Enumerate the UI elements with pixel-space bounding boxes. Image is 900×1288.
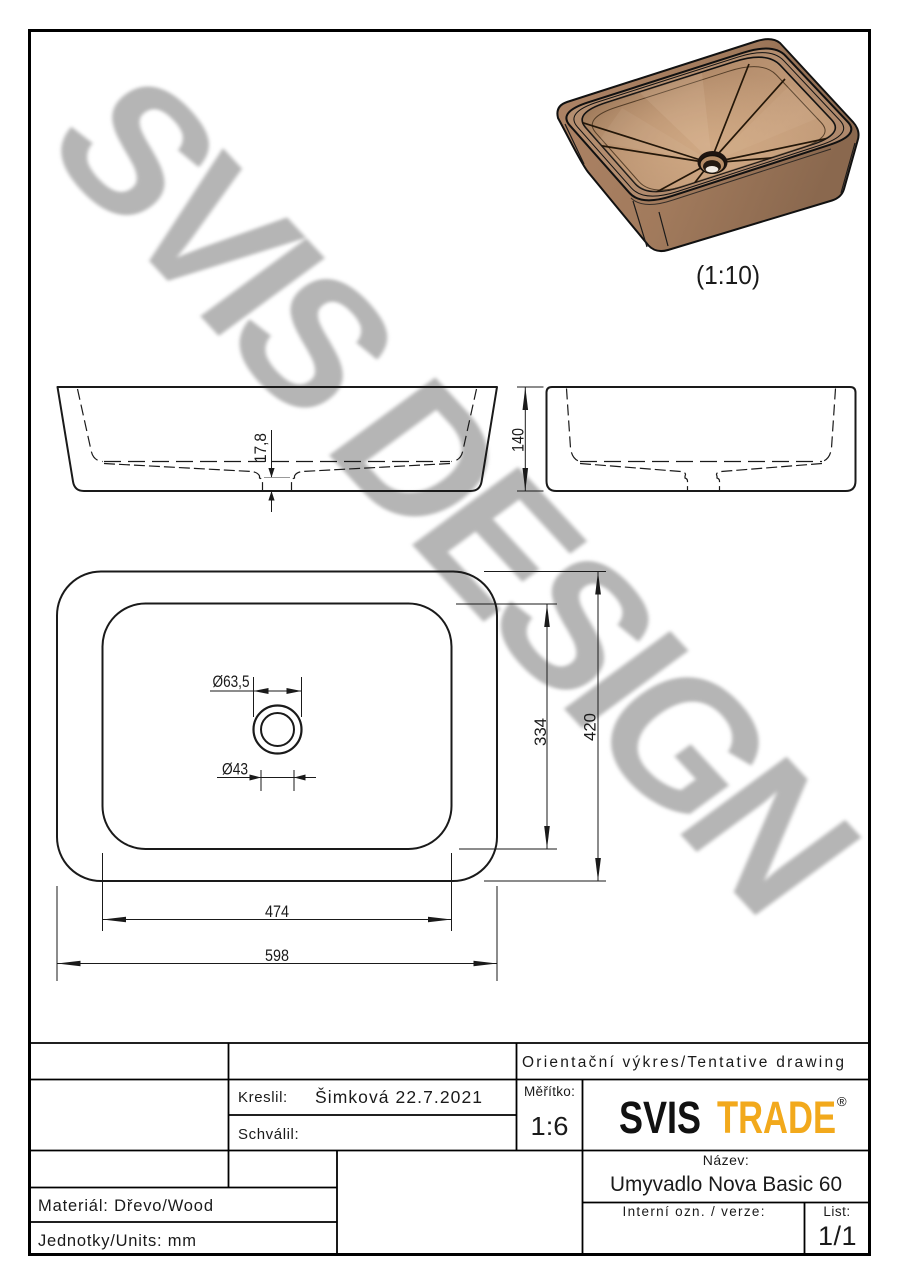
svg-text:Šimková 22.7.2021: Šimková 22.7.2021 <box>315 1086 482 1107</box>
svg-text:Interní ozn. / verze:: Interní ozn. / verze: <box>623 1204 765 1219</box>
svg-text:Schválil:: Schválil: <box>238 1126 299 1143</box>
svg-text:Název:: Název: <box>703 1152 750 1168</box>
svg-text:Materiál: Dřevo/Wood: Materiál: Dřevo/Wood <box>38 1197 213 1215</box>
svg-text:Měřítko:: Měřítko: <box>524 1084 575 1099</box>
svg-text:598: 598 <box>265 947 289 965</box>
svg-text:334: 334 <box>532 718 550 746</box>
svg-text:List:: List: <box>823 1204 850 1219</box>
svg-text:Orientační výkres/Tentative dr: Orientační výkres/Tentative drawing <box>522 1054 844 1071</box>
svg-text:SVIS: SVIS <box>619 1092 701 1143</box>
svg-text:Ø43: Ø43 <box>222 761 248 779</box>
svg-text:474: 474 <box>265 903 289 921</box>
svg-text:Kreslil:: Kreslil: <box>238 1089 288 1106</box>
svg-text:®: ® <box>837 1094 847 1109</box>
svg-text:140: 140 <box>510 428 528 452</box>
svg-text:TRADE: TRADE <box>717 1092 836 1143</box>
svg-text:Jednotky/Units: mm: Jednotky/Units: mm <box>38 1232 196 1250</box>
svg-text:Ø63,5: Ø63,5 <box>213 673 250 691</box>
svg-text:420: 420 <box>582 713 600 741</box>
svg-text:1/1: 1/1 <box>818 1221 857 1251</box>
svg-text:1:6: 1:6 <box>531 1111 569 1141</box>
svg-text:Umyvadlo Nova Basic 60: Umyvadlo Nova Basic 60 <box>610 1172 842 1196</box>
svg-text:(1:10): (1:10) <box>696 260 760 290</box>
svg-text:17,8: 17,8 <box>252 433 270 463</box>
